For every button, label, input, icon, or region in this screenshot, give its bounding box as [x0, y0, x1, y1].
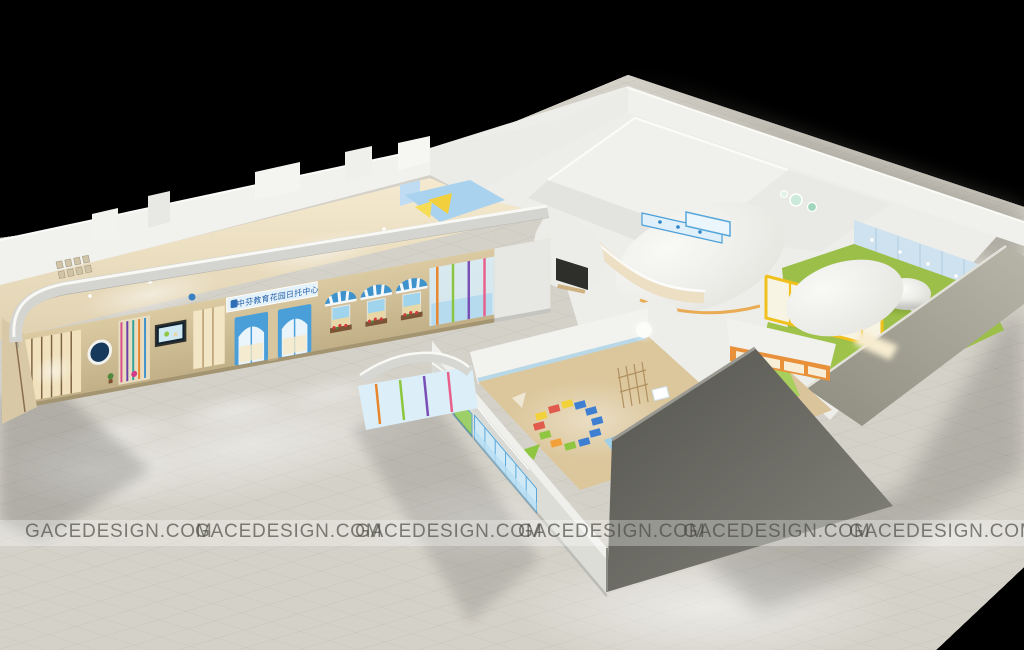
watermark-text: GACEDESIGN.COM [25, 521, 213, 543]
striped-pole-glass [118, 315, 149, 385]
watermark-text: GACEDESIGN.COM [518, 521, 706, 543]
fish-dot [698, 230, 702, 234]
watermark-text: GACEDESIGN.COM [683, 521, 871, 543]
wall-circle-art [781, 191, 788, 198]
warm-glass-panel [193, 305, 224, 369]
sphere-pendant-lamp [636, 322, 652, 338]
scene-3d-render: 中芬教育花园日托中心 [0, 0, 1024, 650]
watermark-text: GACEDESIGN.COM [355, 521, 543, 543]
tv-screen [156, 321, 186, 346]
pilaster [268, 308, 278, 362]
dolphin-decal [189, 294, 196, 301]
arched-door-blue [235, 312, 268, 366]
render-canvas: 中芬教育花园日托中心 [0, 0, 1024, 650]
wall-circle-art [808, 203, 817, 212]
watermark-band: GACEDESIGN.COM GACEDESIGN.COM GACEDESIGN… [0, 520, 1024, 546]
fish-dot [658, 220, 662, 224]
clerestory-glass [429, 256, 494, 326]
watermark-text: GACEDESIGN.COM [849, 521, 1024, 543]
wall-circle-art [790, 194, 802, 206]
arched-door-blue [278, 304, 311, 358]
fish-dot [676, 225, 680, 229]
plant-pot [109, 379, 113, 384]
